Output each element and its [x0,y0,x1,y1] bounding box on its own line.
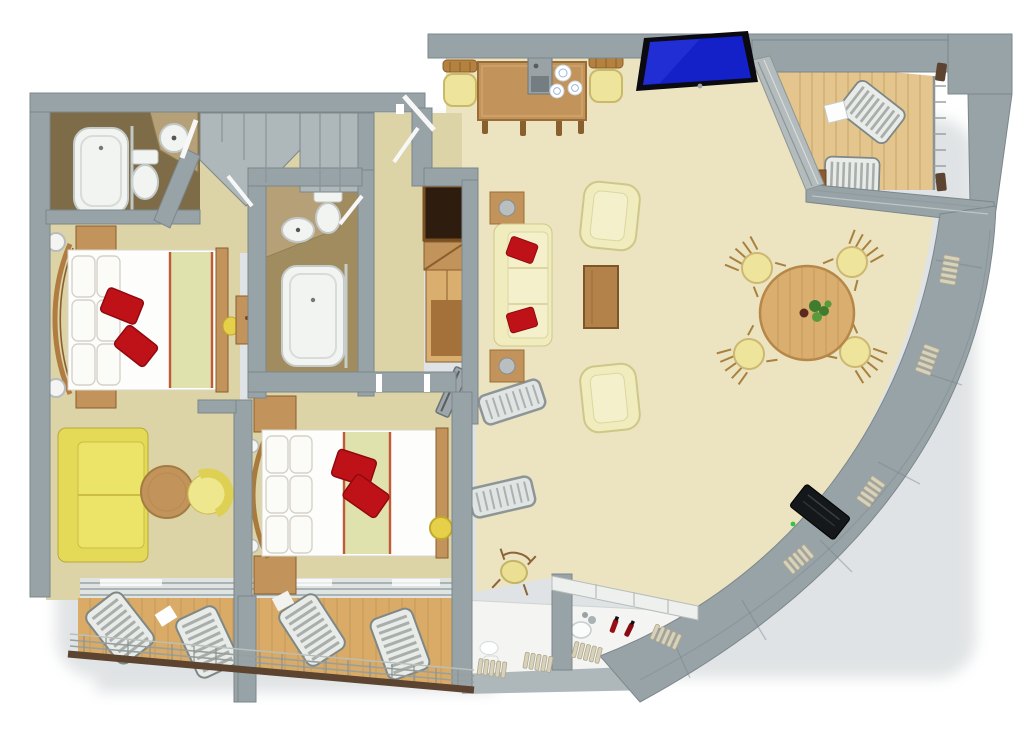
bath2-tub-drain [311,298,315,302]
wall-right-strip [968,94,1012,210]
open-shelf-unit [424,186,464,240]
coffee-table [584,266,618,328]
vase [800,309,809,318]
bedroom2-right-wall [452,392,472,688]
wall-top-right-corner [948,34,1012,94]
bath1-toilet-tank [132,150,158,164]
table-lamp [499,358,515,374]
floorplan-stage [0,0,1024,729]
armchair [579,180,642,251]
floorplan-render [0,0,1024,729]
faucet [588,616,596,624]
coffee-machine-front [531,76,549,92]
partition-stub [198,400,236,413]
wall-tv-blue [636,31,758,91]
bath2-right-wall [358,170,374,396]
door-jamb [424,374,430,392]
wall-left [30,93,50,597]
tray [480,642,498,655]
armchair [579,362,642,433]
door-jamb [376,374,382,392]
nightstand [254,396,296,432]
led-indicator [791,522,796,527]
hall-strip-floor [374,184,424,394]
master-bedroom [47,226,258,408]
bath2-toilet [316,203,340,233]
wall-top-right-thick [752,40,952,72]
side-chair [443,60,477,106]
door-jamb [396,104,404,114]
pouf [430,517,452,539]
bath1-tub-drain [99,146,103,150]
green-runner [170,252,212,388]
bath2-sink-drain [296,228,300,232]
wardrobe-cabinet-inner [431,300,464,356]
machine-dial [534,64,539,69]
side-chair [589,56,623,102]
corridor-right-wall [358,113,374,173]
wardrobe-partition [462,180,478,424]
nightstand [254,556,296,594]
table-lamp [499,200,515,216]
faucet-handle [582,612,588,618]
round-side-table [141,466,193,518]
bath1-toilet [132,165,158,199]
door-jamb [430,94,438,104]
bath2-top-wall [248,168,362,186]
bath1-sink-drain [172,136,177,141]
vanity-basin [571,622,591,638]
wall-top-left [30,93,425,112]
railing-post [935,173,947,192]
